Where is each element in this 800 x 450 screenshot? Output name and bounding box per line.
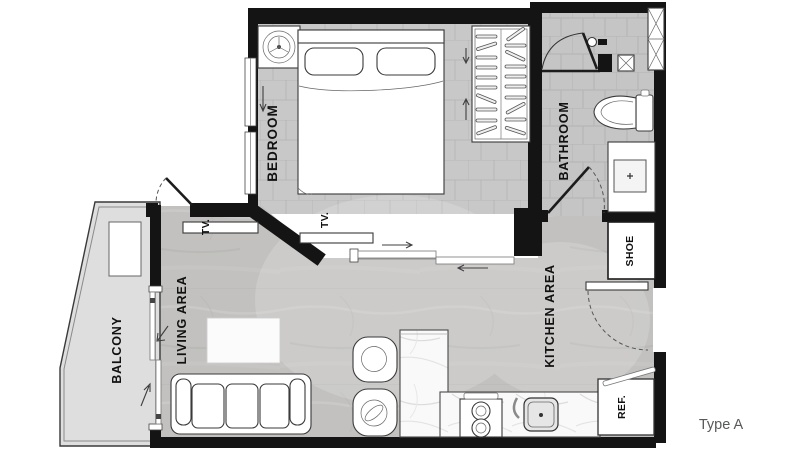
bedroom-window-2 bbox=[245, 132, 256, 194]
tv-bedroom-label: TV. bbox=[319, 212, 331, 228]
balcony-label: BALCONY bbox=[110, 316, 124, 383]
wall-bathroom-top bbox=[530, 2, 666, 13]
double-bed bbox=[298, 30, 444, 194]
shoe-cabinet: SHOE bbox=[608, 222, 655, 279]
balcony-ac-unit bbox=[109, 222, 141, 276]
floor-plan-canvas: SHOE REF. bbox=[0, 0, 800, 450]
tub-chair-1 bbox=[353, 337, 397, 382]
floor-plan-svg: SHOE REF. bbox=[0, 0, 800, 450]
bedroom-label: BEDROOM bbox=[265, 104, 280, 182]
wall-bottom bbox=[150, 437, 656, 448]
wardrobe-icon bbox=[472, 26, 530, 142]
wall-slider-block bbox=[514, 208, 542, 256]
tv-living-label: TV. bbox=[200, 219, 212, 235]
stove-icon bbox=[460, 393, 502, 437]
ceiling-fan-icon bbox=[258, 26, 300, 68]
plan-type-title: Type A bbox=[699, 417, 744, 433]
service-shaft bbox=[648, 8, 664, 70]
coffee-table bbox=[207, 318, 280, 363]
pillow-left bbox=[305, 48, 363, 75]
bathroom-label: BATHROOM bbox=[557, 101, 571, 180]
ledge-swing-door bbox=[156, 178, 192, 205]
wall-bedroom-top bbox=[248, 8, 540, 24]
refrigerator-label: REF. bbox=[616, 395, 628, 419]
living-area-label: LIVING AREA bbox=[175, 276, 189, 365]
shoe-cabinet-label: SHOE bbox=[624, 236, 636, 267]
pillow-right bbox=[377, 48, 435, 75]
sofa-3-seat bbox=[171, 374, 311, 434]
wash-basin-icon bbox=[608, 142, 655, 212]
tub-chair-2 bbox=[353, 389, 397, 436]
bedroom-window-1 bbox=[245, 58, 256, 126]
kitchen-area-label: KITCHEN AREA bbox=[543, 264, 557, 368]
floor-drain-icon bbox=[618, 55, 634, 71]
wall-balcony-divider-top bbox=[150, 205, 161, 289]
